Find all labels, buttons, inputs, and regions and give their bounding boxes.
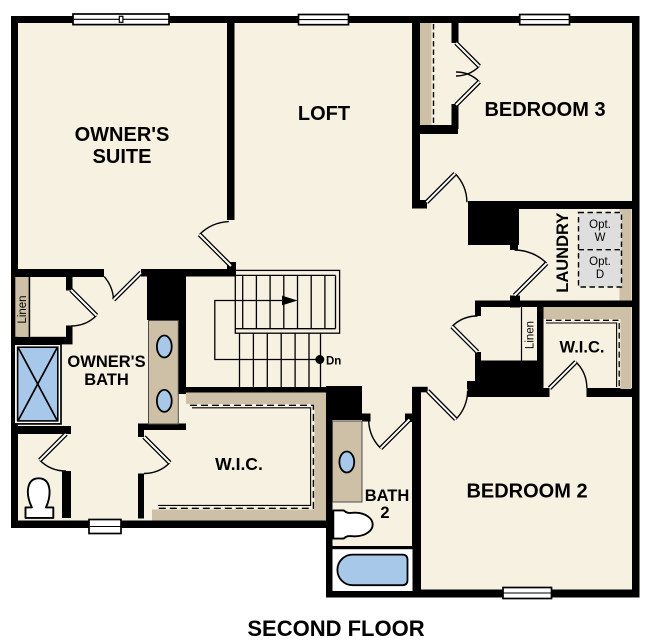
svg-text:SECOND FLOOR: SECOND FLOOR: [247, 616, 424, 641]
svg-text:BATH: BATH: [84, 371, 129, 389]
svg-text:Linen: Linen: [17, 295, 29, 323]
svg-text:OWNER'S: OWNER'S: [75, 124, 170, 146]
svg-text:Opt.: Opt.: [589, 256, 611, 268]
svg-text:Opt.: Opt.: [589, 219, 611, 231]
svg-text:BEDROOM 3: BEDROOM 3: [484, 99, 605, 121]
svg-text:LAUNDRY: LAUNDRY: [554, 213, 572, 293]
svg-text:SUITE: SUITE: [93, 146, 152, 168]
svg-text:D: D: [596, 269, 604, 281]
svg-text:LOFT: LOFT: [298, 103, 350, 125]
svg-text:Linen: Linen: [525, 321, 537, 349]
svg-text:2: 2: [380, 504, 389, 522]
svg-text:W.I.C.: W.I.C.: [560, 339, 605, 357]
svg-text:Dn: Dn: [326, 355, 341, 367]
svg-text:BEDROOM 2: BEDROOM 2: [466, 481, 587, 503]
svg-text:W.I.C.: W.I.C.: [215, 454, 263, 474]
svg-text:BATH: BATH: [365, 487, 410, 505]
svg-text:W: W: [595, 232, 606, 244]
svg-text:OWNER'S: OWNER'S: [67, 353, 145, 371]
